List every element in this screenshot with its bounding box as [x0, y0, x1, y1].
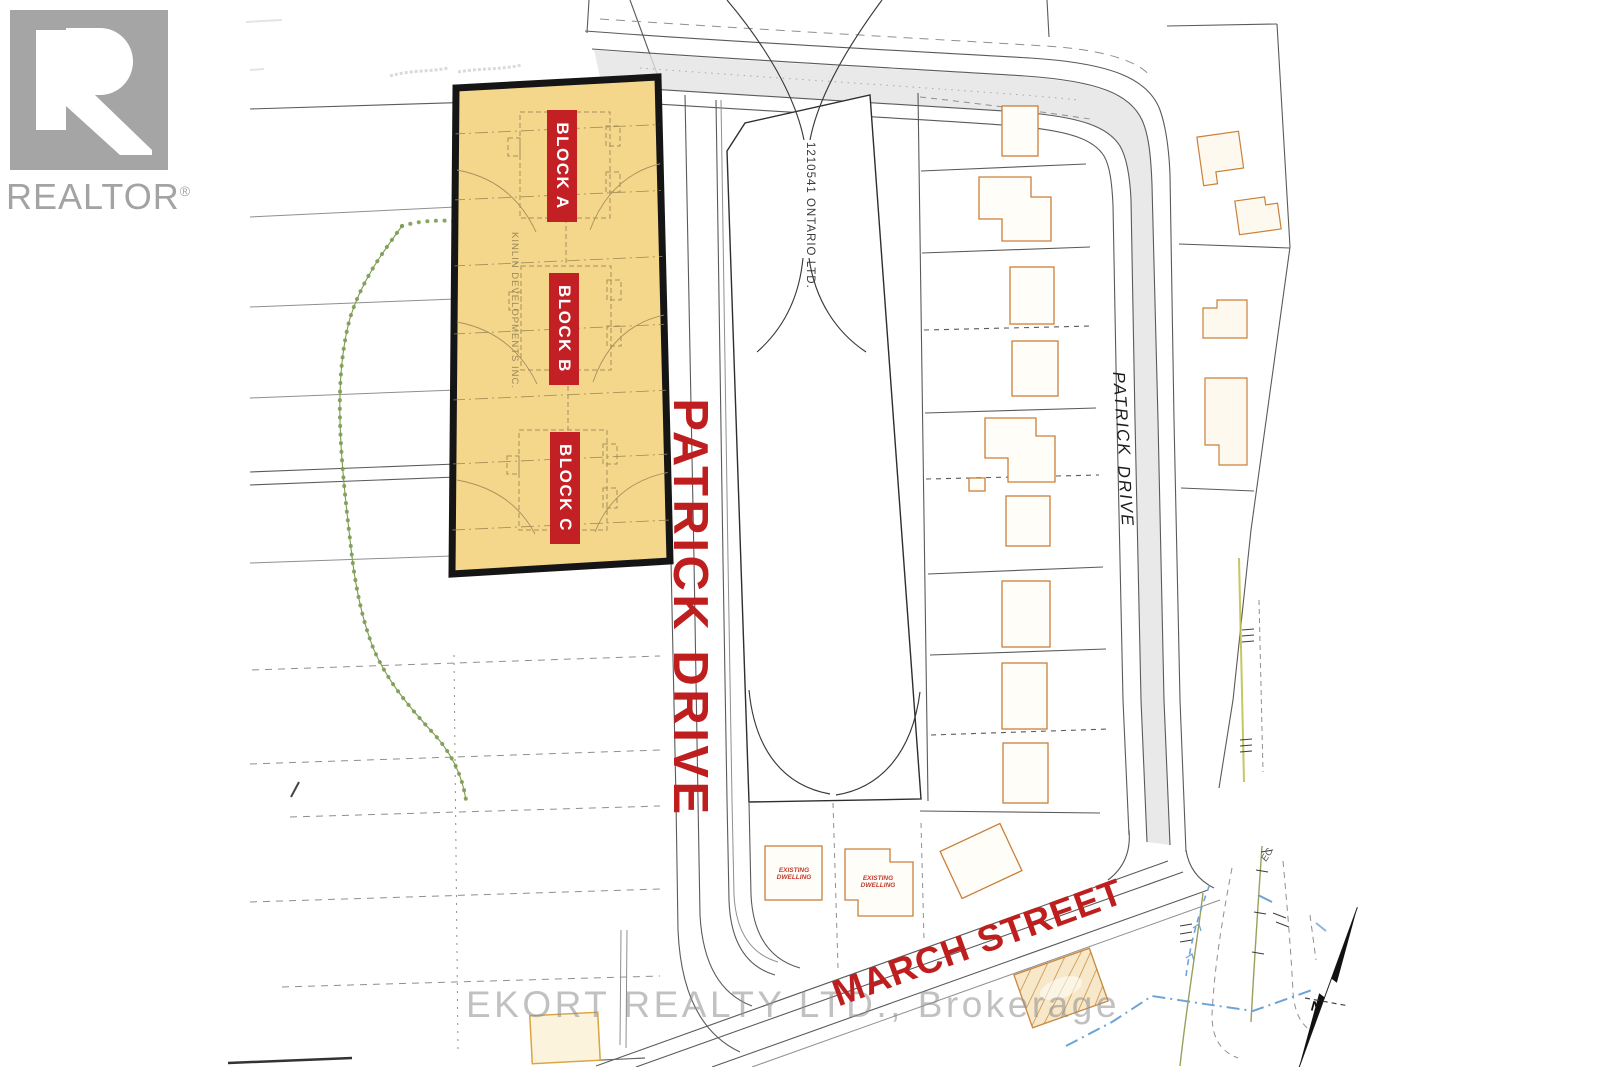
house	[1002, 663, 1047, 729]
existing-dwelling-line1: EXISTING	[861, 875, 896, 882]
tree-line	[340, 221, 466, 800]
flow-chevron	[1186, 954, 1194, 961]
house	[1003, 743, 1048, 803]
survey-tick	[291, 782, 299, 797]
south-dwellings	[765, 803, 924, 968]
block-a-badge: BLOCK A	[547, 110, 577, 222]
faint-annotations	[246, 20, 522, 76]
realtor-wordmark: REALTOR®	[6, 176, 186, 218]
existing-dwelling-line1: EXISTING	[777, 867, 812, 874]
house	[1002, 581, 1050, 647]
house	[1197, 131, 1245, 185]
block-c-badge: BLOCK C	[550, 432, 580, 544]
existing-dwelling-line2: DWELLING	[861, 882, 896, 889]
house	[979, 177, 1051, 241]
survey-linework: 1210541 ONTARIO LTD. PATRICK DRIVE KINLI…	[0, 0, 1600, 1067]
patrick-drive-road-label-word1: PATRICK	[1109, 371, 1134, 457]
patrick-drive-label: PATRICK DRIVE	[662, 398, 718, 817]
house	[1010, 267, 1054, 324]
house-shed	[969, 478, 985, 491]
patrick-drive-road-label-word2: DRIVE	[1114, 465, 1137, 528]
house	[1002, 106, 1038, 156]
brokerage-watermark: EKORT REALTY LTD., Brokerage	[466, 984, 1120, 1026]
house	[1012, 341, 1058, 396]
owner-parcel-outline	[727, 95, 921, 802]
house	[985, 418, 1055, 482]
north-label: N	[1309, 997, 1323, 1015]
house	[1006, 496, 1050, 546]
house	[1235, 195, 1281, 235]
realtor-word: REALTOR	[6, 176, 180, 217]
drainage-tick	[1316, 923, 1326, 931]
house-rotated	[940, 823, 1022, 898]
house	[1205, 378, 1247, 465]
developer-label: KINLIN DEVELOPMENTS INC.	[509, 232, 520, 389]
existing-dwelling-label: EXISTING DWELLING	[777, 867, 812, 881]
east-lots	[1167, 24, 1290, 788]
owner-parcel	[727, 0, 921, 802]
block-b-badge: BLOCK B	[549, 273, 579, 385]
drainage-tick	[1258, 895, 1272, 902]
site-plan-map: 1210541 ONTARIO LTD. PATRICK DRIVE KINLI…	[0, 0, 1600, 1067]
registered-symbol: ®	[180, 183, 191, 199]
hedge-line	[1239, 558, 1244, 782]
north-arrow	[1292, 905, 1363, 1067]
house	[1203, 300, 1247, 338]
middle-lots	[918, 93, 1109, 899]
owner-parcel-label: 1210541 ONTARIO LTD.	[804, 142, 816, 289]
existing-dwelling-line2: DWELLING	[777, 874, 812, 881]
realtor-logo: REALTOR®	[0, 0, 200, 220]
existing-dwelling-label: EXISTING DWELLING	[861, 875, 896, 889]
